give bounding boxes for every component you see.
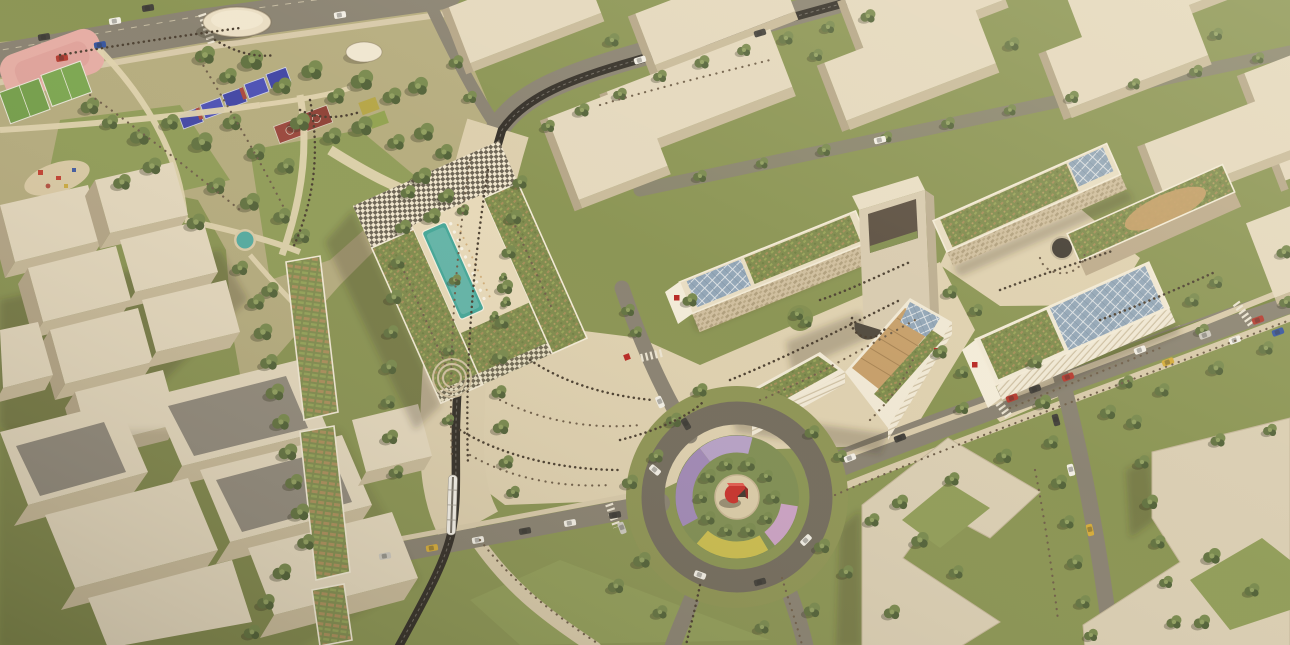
sunlight-overlay [0, 0, 1290, 645]
masterplan-render: Aerial rendering of a mixed-use campus m… [0, 0, 1290, 645]
aerial-scene: Aerial rendering of a mixed-use campus m… [0, 0, 1290, 645]
